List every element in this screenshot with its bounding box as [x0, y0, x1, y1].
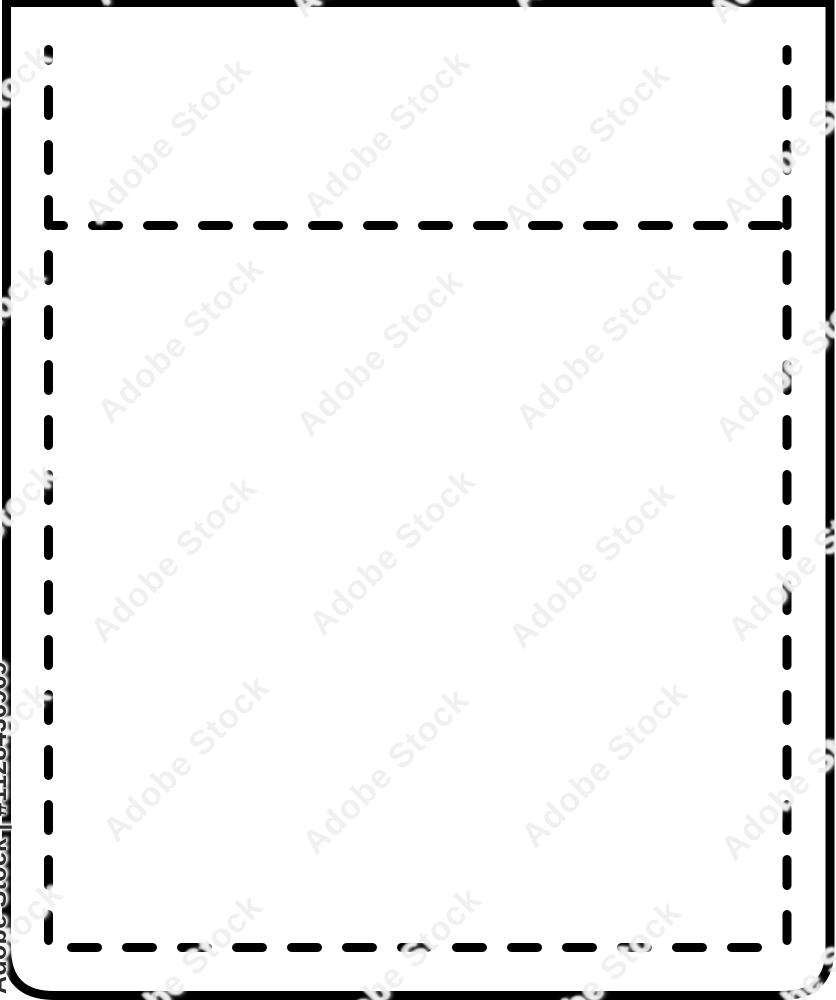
pocket-icon	[0, 0, 836, 1000]
watermark-id-text: Adobe Stock | #1128436969	[0, 661, 13, 994]
stock-image-preview: Adobe Stock Adobe Stock Adobe Stock Adob…	[0, 0, 836, 1000]
pocket-outline	[7, 3, 831, 996]
